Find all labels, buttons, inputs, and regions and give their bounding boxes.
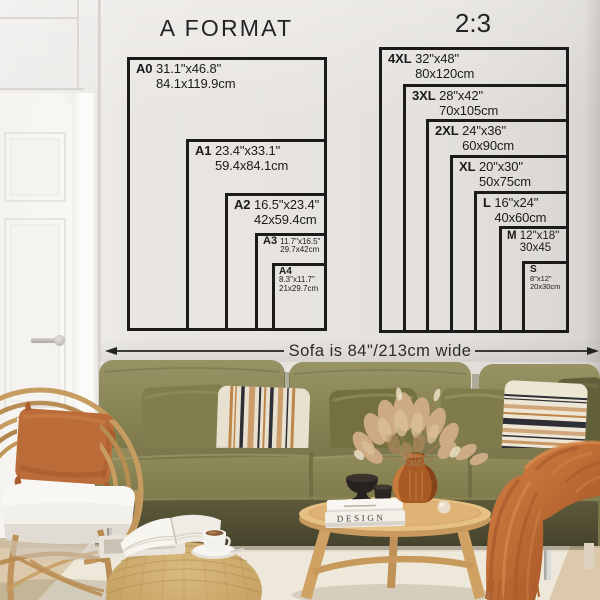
- svg-text:DESIGN: DESIGN: [337, 512, 386, 523]
